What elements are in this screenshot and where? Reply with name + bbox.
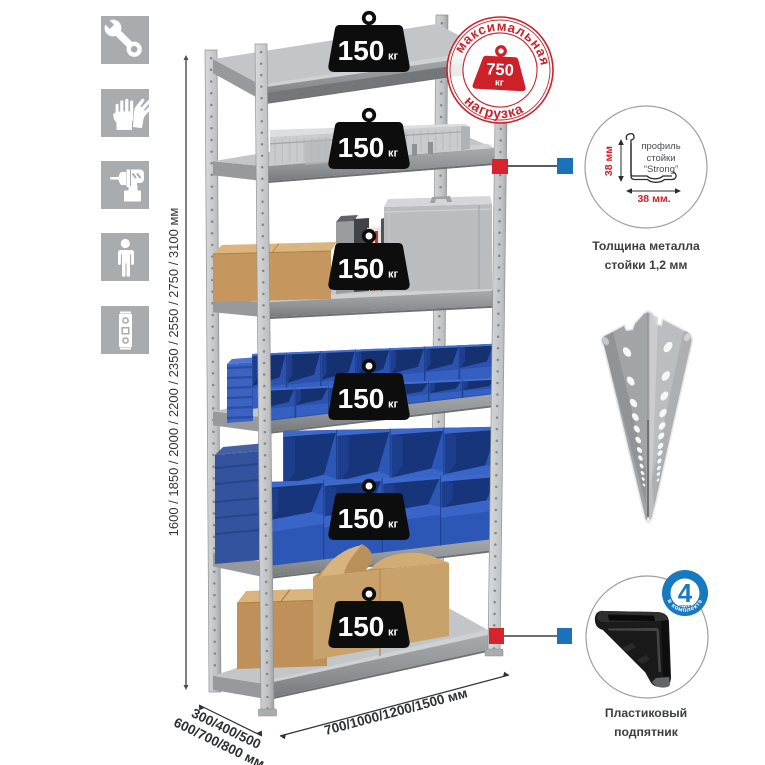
svg-text:Пластиковый: Пластиковый [605, 706, 687, 720]
svg-text:кг: кг [388, 51, 399, 63]
svg-text:150: 150 [338, 503, 385, 534]
svg-text:кг: кг [388, 399, 399, 411]
svg-text:150: 150 [338, 611, 385, 642]
svg-text:150: 150 [338, 253, 385, 284]
svg-text:“Strong”: “Strong” [644, 164, 678, 175]
svg-text:подпятник: подпятник [614, 725, 679, 739]
svg-text:Толщина металла: Толщина металла [592, 239, 700, 253]
svg-text:стойки 1,2 мм: стойки 1,2 мм [605, 258, 688, 272]
svg-text:кг: кг [388, 627, 399, 639]
svg-text:150: 150 [338, 132, 385, 163]
svg-text:700/1000/1200/1500 мм: 700/1000/1200/1500 мм [323, 685, 469, 738]
svg-text:кг: кг [388, 148, 399, 160]
svg-text:150: 150 [338, 383, 385, 414]
svg-text:150: 150 [338, 35, 385, 66]
svg-text:38 мм: 38 мм [603, 146, 615, 176]
svg-text:профиль: профиль [641, 141, 680, 152]
svg-text:кг: кг [388, 519, 399, 531]
svg-text:кг: кг [495, 77, 504, 88]
svg-text:1600 / 1850 / 2000 / 2200 / 23: 1600 / 1850 / 2000 / 2200 / 2350 / 2550 … [166, 208, 181, 537]
svg-text:стойки: стойки [646, 153, 675, 164]
svg-text:38 мм.: 38 мм. [637, 193, 670, 205]
svg-text:кг: кг [388, 269, 399, 281]
